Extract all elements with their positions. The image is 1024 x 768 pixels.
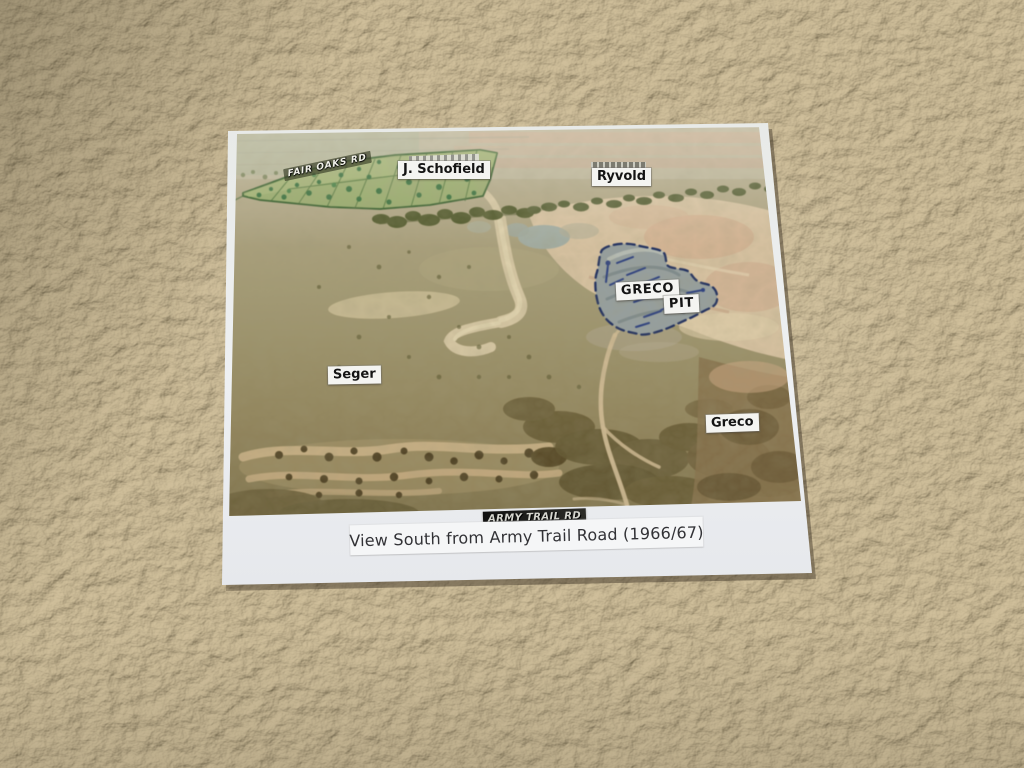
photo-of-aerial-map-on-carpet: FAIR OAKS RD J. Schofield Ryvold GRECO P… xyxy=(0,0,1024,768)
aerial-photo-art xyxy=(229,127,802,517)
seger-label: Seger xyxy=(328,366,381,385)
caption-text: View South from Army Trail Road (1966/67… xyxy=(349,522,704,550)
ryvold-label: Ryvold xyxy=(592,168,651,186)
greco-farm-label: Greco xyxy=(706,413,759,433)
aerial-photo xyxy=(229,127,802,517)
horizon-haze xyxy=(229,127,802,247)
j-schofield-label: J. Schofield xyxy=(398,161,490,179)
greco-pit-label-line2: PIT xyxy=(664,294,700,314)
